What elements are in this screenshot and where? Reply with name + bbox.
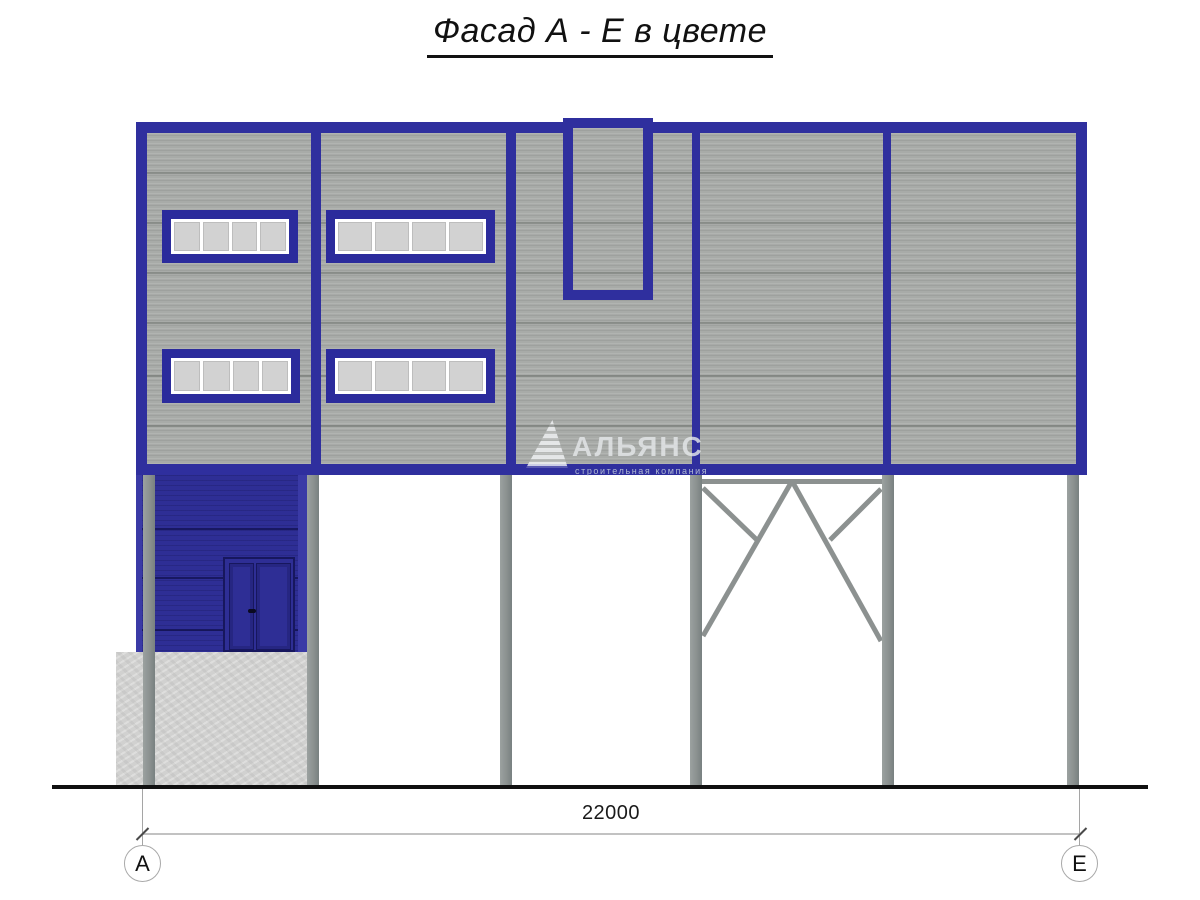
ground-line	[52, 785, 1148, 789]
steel-column	[500, 475, 512, 786]
steel-column	[882, 475, 894, 786]
facade-drawing: Фасад А - Е в цвете	[0, 0, 1200, 900]
steel-column	[143, 475, 155, 786]
steel-column	[1067, 475, 1079, 786]
roof-bracing	[0, 0, 1200, 900]
grid-bubble-e: Е	[1061, 845, 1098, 882]
steel-column	[307, 475, 319, 786]
grid-label-e: Е	[1072, 851, 1087, 877]
steel-column	[690, 475, 702, 786]
grid-bubble-a: А	[124, 845, 161, 882]
dimension-line	[142, 833, 1080, 835]
dimension-label: 22000	[142, 802, 1080, 825]
grid-label-a: А	[135, 851, 150, 877]
